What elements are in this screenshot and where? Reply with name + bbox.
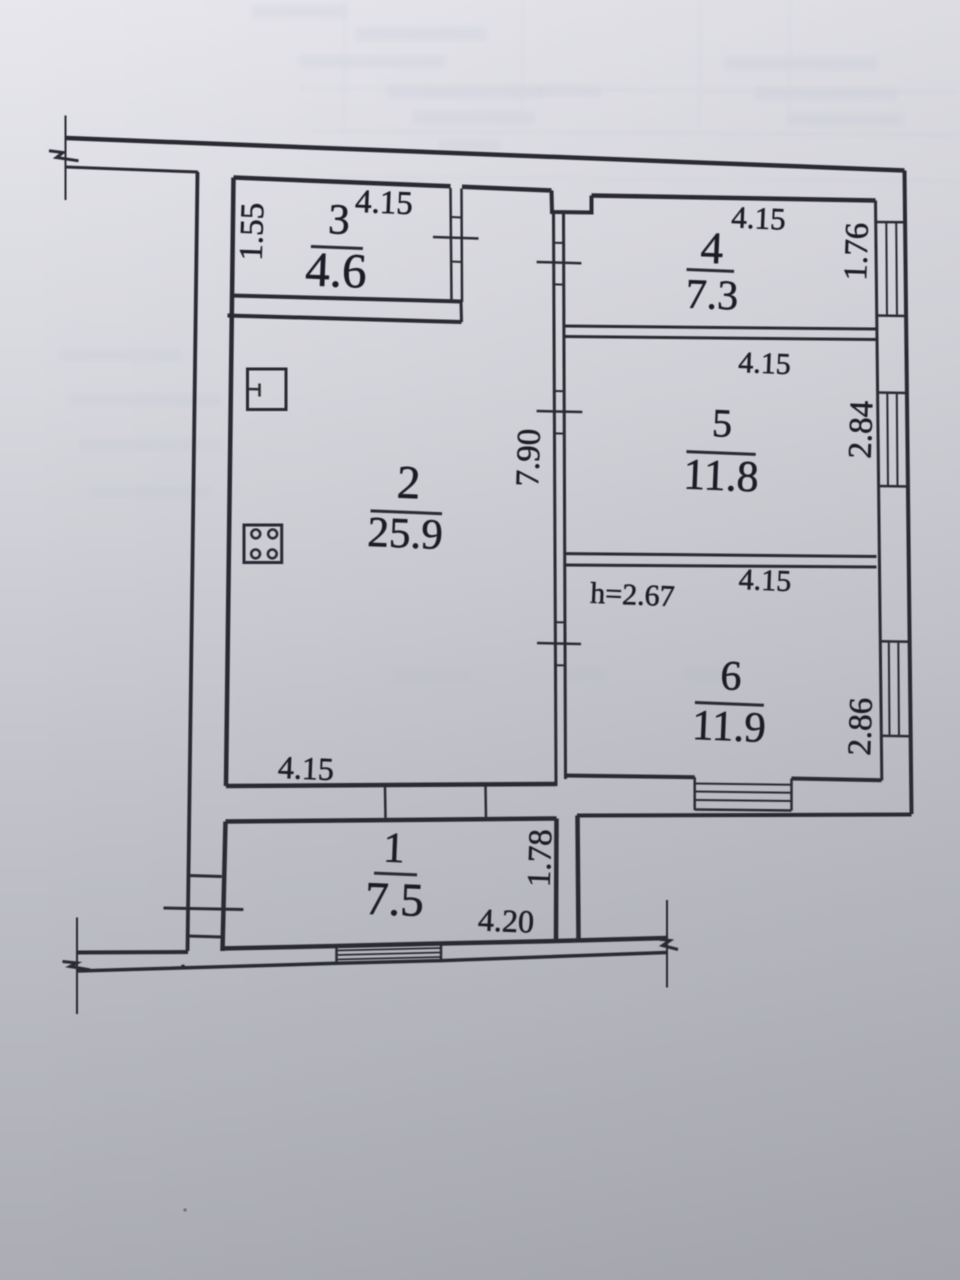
svg-text:4.20: 4.20	[477, 901, 534, 939]
svg-text:6: 6	[720, 653, 743, 700]
svg-text:4.15: 4.15	[738, 346, 792, 381]
svg-text:1: 1	[382, 824, 405, 872]
svg-text:h=2.67: h=2.67	[590, 577, 676, 613]
svg-text:4.15: 4.15	[738, 563, 792, 598]
svg-text:4.15: 4.15	[354, 184, 413, 222]
svg-text:3: 3	[327, 196, 350, 244]
svg-text:1.78: 1.78	[522, 829, 560, 888]
svg-text:2.86: 2.86	[842, 697, 880, 756]
svg-text:5: 5	[711, 400, 733, 446]
svg-text:25.9: 25.9	[367, 509, 444, 559]
svg-text:2.84: 2.84	[843, 400, 881, 459]
svg-text:4: 4	[700, 223, 724, 274]
svg-text:2: 2	[396, 457, 422, 510]
svg-text:4.15: 4.15	[277, 749, 334, 787]
svg-text:7.3: 7.3	[685, 272, 739, 320]
svg-text:4.15: 4.15	[731, 199, 787, 236]
svg-text:1.55: 1.55	[234, 202, 272, 261]
svg-text:7.5: 7.5	[364, 873, 425, 927]
svg-text:1.76: 1.76	[838, 222, 876, 281]
svg-text:7.90: 7.90	[510, 428, 548, 487]
svg-text:11.8: 11.8	[682, 450, 759, 502]
svg-text:4.6: 4.6	[304, 241, 367, 298]
svg-text:11.9: 11.9	[691, 702, 766, 752]
